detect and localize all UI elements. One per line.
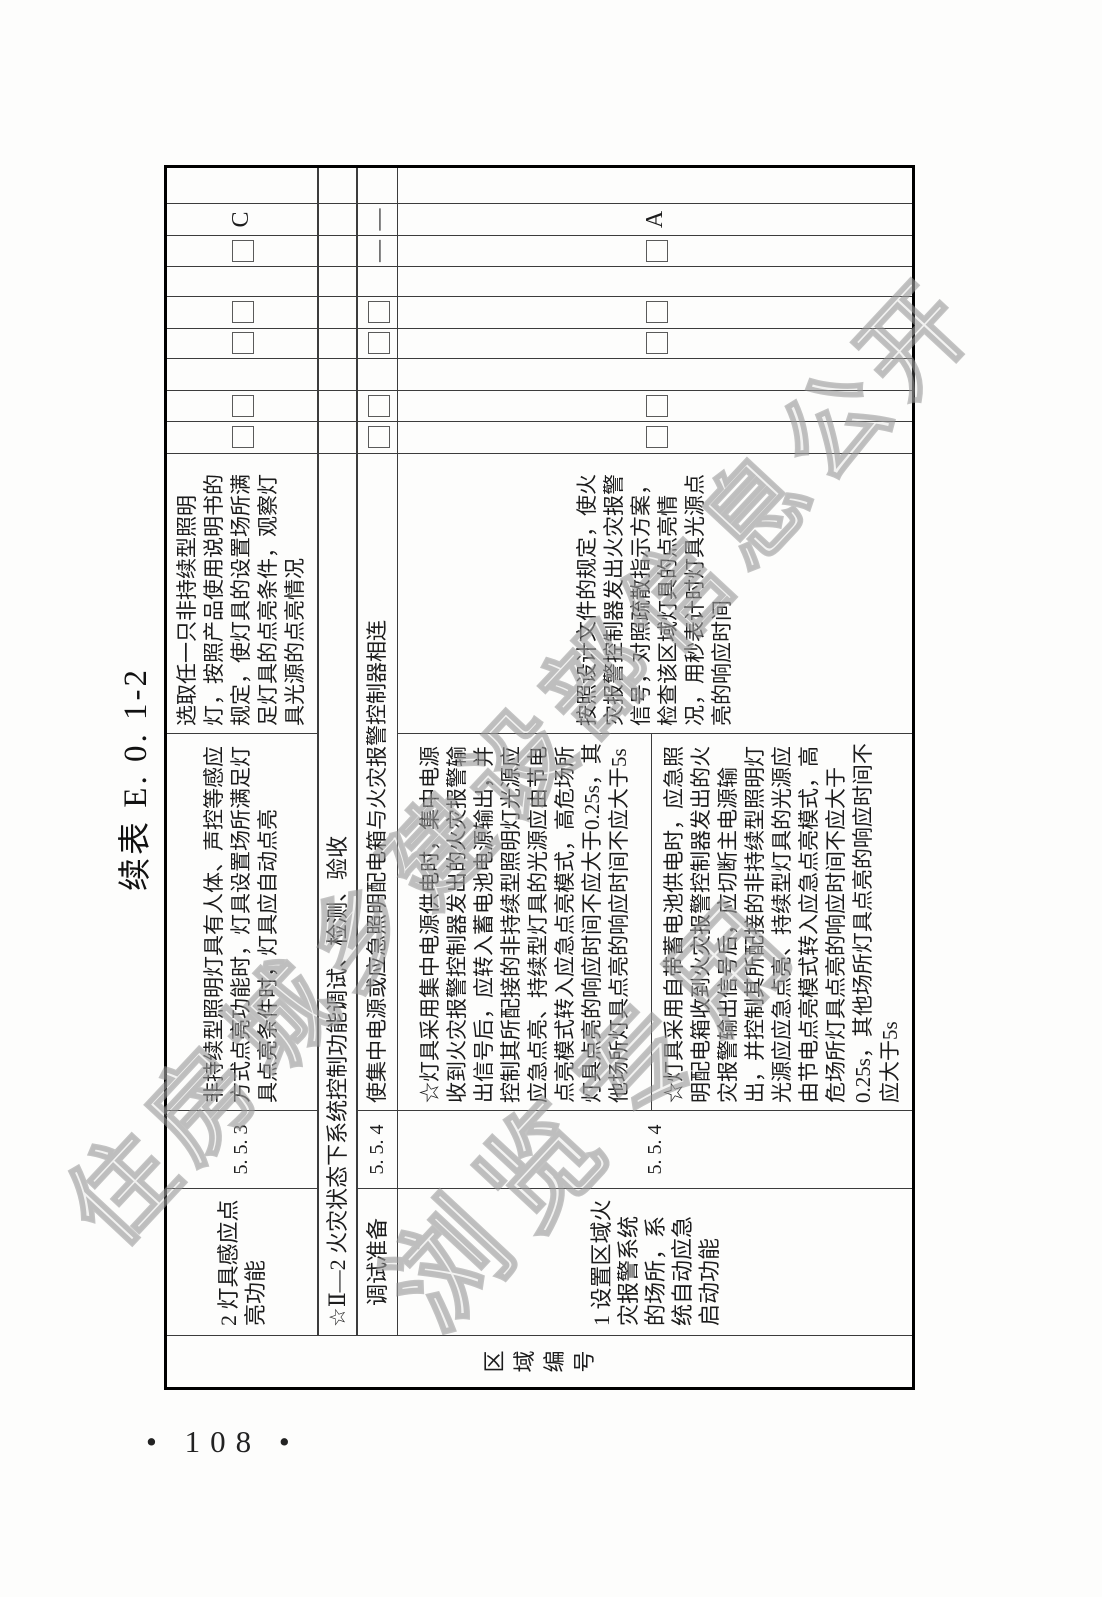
clause-cell: 5. 5. 3: [166, 1111, 318, 1189]
section-header-cell: ☆Ⅱ—2 火灾状态下系统控制功能调试、检测、验收: [318, 454, 357, 1336]
checkbox-icon[interactable]: [646, 240, 668, 262]
clause-cell: 5. 5. 4: [398, 1111, 914, 1189]
result-spacer-cell: [398, 267, 914, 297]
table-row-debug-prep: 调试准备 5. 5. 4 使集中电源或应急照明配电箱与火灾报警控制器相连 — —: [357, 167, 398, 1389]
result-cell: [398, 391, 914, 422]
remark-cell: [166, 167, 318, 204]
table-row-fire-auto-1: 1 设置区域火灾报警系统的场所，系统自动应急启动功能 5. 5. 4 ☆灯具采用…: [398, 167, 652, 1389]
document-page: 续表 E. 0. 1-2 区域编号 2 灯具感应点亮功能 5. 5. 3 非持续…: [0, 0, 1102, 1597]
content-cell: 使集中电源或应急照明配电箱与火灾报警控制器相连: [357, 454, 398, 1111]
result-spacer-cell: [318, 267, 357, 297]
remark-cell: [318, 167, 357, 204]
checkbox-icon[interactable]: [232, 240, 254, 262]
requirement-cell-centralized: ☆灯具采用集中电源供电时，集中电源收到火灾报警控制器发出的火灾报警输出信号后，应…: [398, 734, 652, 1111]
table-row-lamp-sensor: 区域编号 2 灯具感应点亮功能 5. 5. 3 非持续型照明灯具有人体、声控等感…: [166, 167, 318, 1389]
clause-cell: 5. 5. 4: [357, 1111, 398, 1189]
result-spacer-cell: [166, 359, 318, 391]
inspection-record-table: 区域编号 2 灯具感应点亮功能 5. 5. 3 非持续型照明灯具有人体、声控等感…: [164, 165, 915, 1390]
result-cell: [166, 391, 318, 422]
result-cell: [166, 422, 318, 454]
result-cell: [318, 329, 357, 359]
rotated-table-sheet: 续表 E. 0. 1-2 区域编号 2 灯具感应点亮功能 5. 5. 3 非持续…: [0, 0, 1102, 1597]
conclusion-cell: —: [357, 236, 398, 267]
checkbox-icon[interactable]: [646, 427, 668, 449]
table-title: 续表 E. 0. 1-2: [108, 168, 156, 1390]
result-spacer-cell: [357, 267, 398, 297]
result-spacer-cell: [398, 359, 914, 391]
result-spacer-cell: [166, 267, 318, 297]
result-cell: [357, 329, 398, 359]
checkbox-icon[interactable]: [232, 302, 254, 324]
method-cell: 按照设计文件的规定，使火灾报警控制器发出火灾报警信号，对照疏散指示方案，检查该区…: [398, 454, 914, 734]
requirement-cell-selfcontained: ☆灯具采用自带蓄电池供电时，应急照明配电箱收到火灾报警控制器发出的火灾报警输出信…: [652, 734, 914, 1111]
method-cell: 选取任一只非持续型照明灯，按照产品使用说明书的规定，使灯具的设置场所满足灯具的点…: [166, 454, 318, 734]
item-cell: 调试准备: [357, 1189, 398, 1336]
page-number: • 108 •: [146, 1424, 300, 1460]
table-row-section-header: ☆Ⅱ—2 火灾状态下系统控制功能调试、检测、验收: [318, 167, 357, 1389]
grade-cell: [318, 204, 357, 236]
checkbox-icon[interactable]: [646, 302, 668, 324]
checkbox-icon[interactable]: [368, 333, 390, 355]
conclusion-cell: [166, 236, 318, 267]
result-spacer-cell: [357, 359, 398, 391]
result-cell: [357, 297, 398, 329]
checkbox-icon[interactable]: [232, 427, 254, 449]
result-cell: [318, 422, 357, 454]
conclusion-cell: [318, 236, 357, 267]
checkbox-icon[interactable]: [368, 395, 390, 417]
result-cell: [357, 391, 398, 422]
item-cell: 1 设置区域火灾报警系统的场所，系统自动应急启动功能: [398, 1189, 914, 1336]
requirement-cell: 非持续型照明灯具有人体、声控等感应方式点亮功能时，灯具设置场所满足灯具点亮条件时…: [166, 734, 318, 1111]
result-cell: [398, 329, 914, 359]
checkbox-icon[interactable]: [232, 333, 254, 355]
checkbox-icon[interactable]: [232, 395, 254, 417]
item-cell: 2 灯具感应点亮功能: [166, 1189, 318, 1336]
remark-cell: [398, 167, 914, 204]
grade-cell: A: [398, 204, 914, 236]
checkbox-icon[interactable]: [646, 333, 668, 355]
result-cell: [318, 391, 357, 422]
result-cell: [398, 297, 914, 329]
result-spacer-cell: [318, 359, 357, 391]
result-cell: [398, 422, 914, 454]
grade-cell: —: [357, 204, 398, 236]
result-cell: [357, 422, 398, 454]
result-cell: [166, 329, 318, 359]
checkbox-icon[interactable]: [646, 395, 668, 417]
remark-cell: [357, 167, 398, 204]
conclusion-cell: [398, 236, 914, 267]
grade-cell: C: [166, 204, 318, 236]
result-cell: [318, 297, 357, 329]
checkbox-icon[interactable]: [368, 302, 390, 324]
checkbox-icon[interactable]: [368, 427, 390, 449]
region-number-cell: 区域编号: [166, 1336, 914, 1389]
result-cell: [166, 297, 318, 329]
